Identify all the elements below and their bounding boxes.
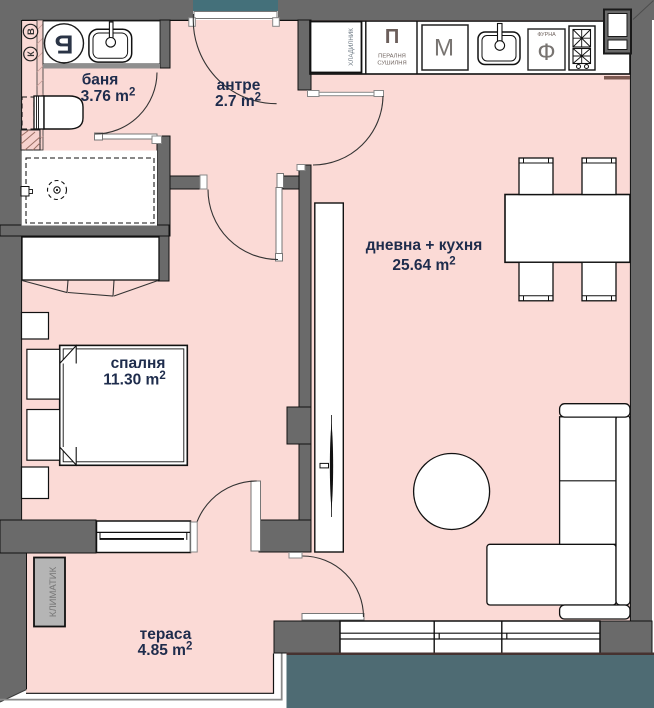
svg-text:М: М bbox=[434, 35, 454, 62]
svg-text:ПЕРАЛНЯ: ПЕРАЛНЯ bbox=[378, 54, 406, 60]
svg-text:ХЛАДИЛНИК: ХЛАДИЛНИК bbox=[348, 28, 355, 66]
svg-text:4.85 m2: 4.85 m2 bbox=[138, 641, 193, 660]
svg-text:СУШИЛНЯ: СУШИЛНЯ bbox=[377, 61, 406, 67]
svg-text:11.30 m2: 11.30 m2 bbox=[103, 370, 165, 389]
svg-text:Ф: Ф bbox=[537, 39, 555, 66]
svg-text:В: В bbox=[26, 28, 37, 35]
svg-text:25.64 m2: 25.64 m2 bbox=[392, 256, 455, 275]
svg-text:3.76 m2: 3.76 m2 bbox=[81, 87, 136, 106]
svg-text:ФУРНА: ФУРНА bbox=[537, 32, 556, 38]
svg-text:К: К bbox=[26, 51, 36, 57]
svg-text:дневна + кухня: дневна + кухня bbox=[366, 237, 483, 254]
svg-text:П: П bbox=[385, 26, 399, 48]
svg-text:баня: баня bbox=[82, 72, 119, 89]
svg-text:2.7 m2: 2.7 m2 bbox=[215, 92, 261, 111]
svg-text:тераса: тераса bbox=[140, 626, 192, 643]
svg-text:спалня: спалня bbox=[111, 355, 166, 372]
svg-text:КЛИМАТИК: КЛИМАТИК bbox=[48, 566, 59, 617]
svg-text:Б: Б bbox=[55, 30, 74, 60]
